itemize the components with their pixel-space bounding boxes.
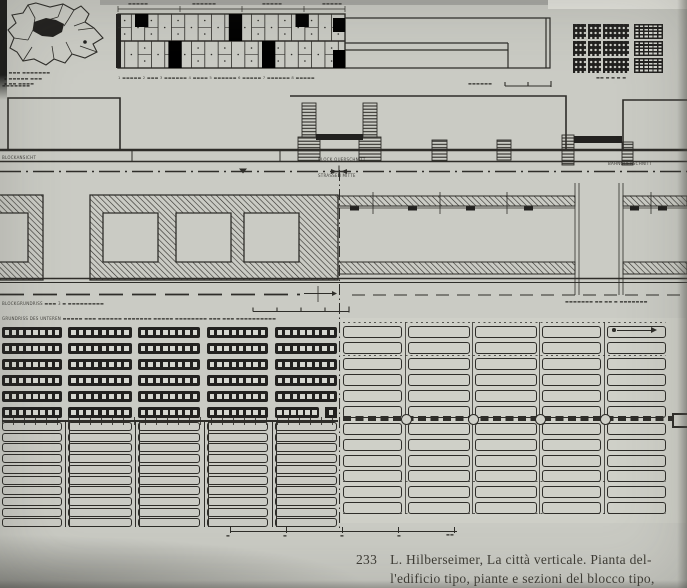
window [246, 330, 251, 336]
window [185, 394, 190, 400]
window [293, 394, 298, 400]
window [156, 362, 161, 368]
floor-slab-outline [2, 443, 62, 452]
window [148, 410, 153, 416]
window [26, 362, 31, 368]
window [141, 346, 146, 352]
floor-slab-outline [275, 476, 337, 485]
rail-ticks-left [2, 417, 338, 425]
window [285, 394, 290, 400]
window [170, 346, 175, 352]
window [224, 378, 229, 384]
window [71, 362, 76, 368]
floor-slab-outline [68, 486, 132, 495]
window [261, 330, 266, 336]
apartment-window-bar [207, 359, 268, 370]
window [117, 362, 122, 368]
window [239, 394, 244, 400]
floor-slab-outline [68, 465, 132, 474]
floor-slab-outline [542, 486, 601, 498]
window [178, 362, 183, 368]
window [124, 362, 129, 368]
floor-slab-outline [408, 358, 470, 370]
apartment-window-bar [68, 343, 132, 354]
window [239, 362, 244, 368]
window [141, 330, 146, 336]
rail-band-right [343, 416, 673, 422]
window [71, 378, 76, 384]
window [170, 362, 175, 368]
floor-slab-outline [475, 342, 537, 354]
window [94, 362, 99, 368]
bottom-scale-number: ▬ [226, 534, 230, 538]
window [163, 362, 168, 368]
window [33, 362, 38, 368]
rail-node [535, 414, 546, 425]
window [239, 346, 244, 352]
floor-slab-outline [138, 486, 200, 495]
window [156, 410, 161, 416]
floor-slab-outline [542, 423, 601, 435]
window [48, 378, 53, 384]
window [285, 378, 290, 384]
window [300, 394, 305, 400]
window [193, 378, 198, 384]
apartment-window-bar [68, 391, 132, 402]
window [5, 330, 10, 336]
window [109, 394, 114, 400]
window [185, 410, 190, 416]
window [210, 410, 215, 416]
floor-slab-outline [475, 423, 537, 435]
window [307, 394, 312, 400]
window [5, 362, 10, 368]
floor-slab-outline [68, 443, 132, 452]
floor-slab-outline [275, 433, 337, 442]
window [193, 362, 198, 368]
window [86, 394, 91, 400]
window [322, 394, 327, 400]
floor-slab-outline [408, 374, 470, 386]
window [94, 378, 99, 384]
window [246, 346, 251, 352]
window [102, 410, 107, 416]
window [285, 330, 290, 336]
window [224, 346, 229, 352]
window [307, 378, 312, 384]
window [86, 330, 91, 336]
window [330, 346, 335, 352]
window [141, 410, 146, 416]
window [224, 330, 229, 336]
floor-slab-outline [68, 508, 132, 517]
dotted-gridline [343, 355, 666, 356]
window [71, 410, 76, 416]
bottom-scale-number: ▬ [397, 534, 401, 538]
window [48, 410, 53, 416]
window [109, 346, 114, 352]
window [33, 330, 38, 336]
floor-slab-outline [607, 455, 666, 467]
floor-slab-outline [607, 358, 666, 370]
floor-slab-outline [542, 342, 601, 354]
floor-slab-outline [343, 455, 402, 467]
floor-slab-outline [343, 358, 402, 370]
window [253, 362, 258, 368]
window [232, 378, 237, 384]
floor-slab-outline [2, 454, 62, 463]
window [253, 394, 258, 400]
window [26, 410, 31, 416]
window [163, 346, 168, 352]
floor-slab-outline [207, 433, 268, 442]
window [5, 394, 10, 400]
window [315, 362, 320, 368]
window [185, 346, 190, 352]
window [253, 346, 258, 352]
window [33, 346, 38, 352]
window [277, 410, 282, 416]
window [26, 378, 31, 384]
window [322, 378, 327, 384]
floor-slab-outline [542, 374, 601, 386]
window [141, 394, 146, 400]
floor-slab-outline [2, 476, 62, 485]
window [246, 362, 251, 368]
apartment-window-bar [138, 327, 200, 338]
window [12, 378, 17, 384]
window [322, 362, 327, 368]
floor-slab-outline [68, 454, 132, 463]
window [117, 394, 122, 400]
floor-slab-outline [607, 439, 666, 451]
window [48, 346, 53, 352]
window [170, 410, 175, 416]
floor-slab-outline [343, 486, 402, 498]
window [307, 346, 312, 352]
rail-node [401, 414, 412, 425]
apartment-window-bar [138, 343, 200, 354]
floor-slab-outline [542, 390, 601, 402]
window [246, 410, 251, 416]
column-connector-line [272, 421, 277, 527]
rail-node [600, 414, 611, 425]
floor-slab-outline [343, 390, 402, 402]
floor-slab-outline [343, 423, 402, 435]
floor-slab-outline [343, 439, 402, 451]
floor-slab-outline [138, 508, 200, 517]
floor-slab-outline [275, 508, 337, 517]
window [239, 330, 244, 336]
window [109, 362, 114, 368]
window [86, 410, 91, 416]
window [55, 394, 60, 400]
window [253, 330, 258, 336]
floor-slab-outline [607, 374, 666, 386]
window [12, 394, 17, 400]
window [246, 394, 251, 400]
window [163, 410, 168, 416]
apartment-window-bar [68, 327, 132, 338]
window [185, 378, 190, 384]
window [79, 394, 84, 400]
window [170, 378, 175, 384]
window [278, 362, 283, 368]
caption-text: L. Hilberseimer, La città verticale. Pia… [390, 550, 655, 588]
floor-slab-outline [2, 433, 62, 442]
floor-slab-outline [475, 358, 537, 370]
window [210, 330, 215, 336]
window [148, 362, 153, 368]
window [117, 378, 122, 384]
window [86, 346, 91, 352]
floor-slab-outline [138, 465, 200, 474]
window [26, 330, 31, 336]
window [300, 362, 305, 368]
window [109, 330, 114, 336]
window [210, 394, 215, 400]
floor-slab-outline [408, 390, 470, 402]
window [307, 330, 312, 336]
window [315, 330, 320, 336]
floor-slab-outline [408, 439, 470, 451]
window [300, 330, 305, 336]
window [5, 346, 10, 352]
window [48, 362, 53, 368]
window [71, 346, 76, 352]
window [109, 378, 114, 384]
floor-slab-outline [542, 358, 601, 370]
floor-slab-outline [207, 497, 268, 506]
window [305, 410, 310, 416]
floor-slab-outline [607, 326, 666, 338]
window [19, 410, 24, 416]
window [12, 346, 17, 352]
window [217, 330, 222, 336]
window [315, 394, 320, 400]
floor-slab-outline [343, 342, 402, 354]
apartment-window-bar [2, 327, 62, 338]
window [71, 330, 76, 336]
window [293, 362, 298, 368]
window [148, 330, 153, 336]
window [141, 362, 146, 368]
window [278, 346, 283, 352]
apartment-window-bar [275, 343, 337, 354]
marker-arrowhead [651, 327, 657, 333]
window [117, 410, 122, 416]
window [232, 410, 237, 416]
apartment-window-bar [275, 375, 337, 386]
window [94, 394, 99, 400]
floor-slab-outline [408, 423, 470, 435]
window [79, 362, 84, 368]
window [86, 378, 91, 384]
window [217, 362, 222, 368]
column-connector-line [204, 421, 209, 527]
window [109, 410, 114, 416]
floor-slab-outline [2, 465, 62, 474]
floor-slab-outline [275, 465, 337, 474]
window [156, 394, 161, 400]
window [307, 362, 312, 368]
caption-line-1: L. Hilberseimer, La città verticale. Pia… [390, 550, 655, 569]
window [253, 410, 258, 416]
window [124, 410, 129, 416]
apartment-window-bar [207, 327, 268, 338]
window [124, 394, 129, 400]
window [330, 330, 335, 336]
window [224, 410, 229, 416]
bottom-scale-ticks [230, 527, 458, 533]
window [210, 362, 215, 368]
window [261, 394, 266, 400]
bottom-scale-number: ▬ [340, 534, 344, 538]
floor-slab-outline [275, 443, 337, 452]
window [40, 346, 45, 352]
window [284, 410, 289, 416]
window [193, 346, 198, 352]
window [79, 330, 84, 336]
floor-slab-outline [275, 454, 337, 463]
dotted-gridline [343, 481, 666, 482]
window [40, 378, 45, 384]
window [102, 330, 107, 336]
window [330, 378, 335, 384]
window [253, 378, 258, 384]
window [55, 378, 60, 384]
window [178, 346, 183, 352]
window [261, 410, 266, 416]
apartment-window-bar [275, 391, 337, 402]
floor-slab-outline [138, 497, 200, 506]
street-centerline [339, 170, 340, 532]
apartment-window-bar [138, 375, 200, 386]
window [163, 394, 168, 400]
floor-slab-outline [475, 455, 537, 467]
window [117, 346, 122, 352]
window [40, 362, 45, 368]
window [170, 394, 175, 400]
window [102, 378, 107, 384]
window [33, 394, 38, 400]
window [71, 394, 76, 400]
window [26, 346, 31, 352]
apartment-window-bar [275, 359, 337, 370]
window [117, 330, 122, 336]
floor-slab-outline [138, 476, 200, 485]
apartment-window-bar [138, 359, 200, 370]
window [178, 410, 183, 416]
floor-slab-outline [275, 486, 337, 495]
floor-slab-outline [275, 497, 337, 506]
window [94, 346, 99, 352]
window [293, 378, 298, 384]
floor-slab-outline [408, 326, 470, 338]
window [19, 330, 24, 336]
apartment-window-bar [207, 343, 268, 354]
window [156, 346, 161, 352]
bottom-scale-number: ▬ [283, 534, 287, 538]
floor-slab-outline [2, 508, 62, 517]
window [330, 394, 335, 400]
window [94, 410, 99, 416]
apartment-window-bar [138, 391, 200, 402]
window [148, 346, 153, 352]
window [298, 410, 303, 416]
floor-slab-outline [475, 439, 537, 451]
floor-slab-outline [2, 486, 62, 495]
floor-slab-outline [475, 326, 537, 338]
window [278, 394, 283, 400]
floor-slab-outline [207, 454, 268, 463]
floor-slab-outline [2, 518, 62, 527]
window [224, 394, 229, 400]
window [148, 378, 153, 384]
window [55, 410, 60, 416]
floor-slab-outline [607, 423, 666, 435]
window [40, 410, 45, 416]
floor-slab-outline [68, 518, 132, 527]
window [163, 330, 168, 336]
window [94, 330, 99, 336]
apartment-window-bar [2, 391, 62, 402]
apartment-window-bar [2, 343, 62, 354]
window [224, 362, 229, 368]
window [19, 378, 24, 384]
bottom-scale-number: ▬▬ [446, 533, 454, 537]
window [278, 378, 283, 384]
window [239, 410, 244, 416]
window [48, 394, 53, 400]
window [217, 346, 222, 352]
column-connector-line [135, 421, 140, 527]
window [185, 362, 190, 368]
window [26, 394, 31, 400]
window [12, 410, 17, 416]
apartment-window-bar [2, 375, 62, 386]
window [148, 394, 153, 400]
marker-line [617, 330, 651, 331]
floor-slab-outline [607, 486, 666, 498]
window [232, 346, 237, 352]
window [79, 410, 84, 416]
window [178, 394, 183, 400]
floor-slab-outline [138, 443, 200, 452]
window [329, 410, 334, 416]
window [40, 330, 45, 336]
ground-level-block-plan: ▬▬▬▬▬▬ [0, 0, 687, 588]
window [278, 330, 283, 336]
apartment-window-bar [207, 391, 268, 402]
floor-slab-outline [607, 390, 666, 402]
window [124, 346, 129, 352]
window [79, 346, 84, 352]
window [193, 330, 198, 336]
window [19, 362, 24, 368]
window [293, 346, 298, 352]
window [300, 346, 305, 352]
floor-slab-outline [408, 455, 470, 467]
floor-slab-outline [343, 326, 402, 338]
window [86, 362, 91, 368]
floor-slab-outline [475, 486, 537, 498]
window [55, 330, 60, 336]
window [330, 362, 335, 368]
column-connector-line [65, 421, 70, 527]
apartment-window-bar [68, 359, 132, 370]
window [5, 410, 10, 416]
